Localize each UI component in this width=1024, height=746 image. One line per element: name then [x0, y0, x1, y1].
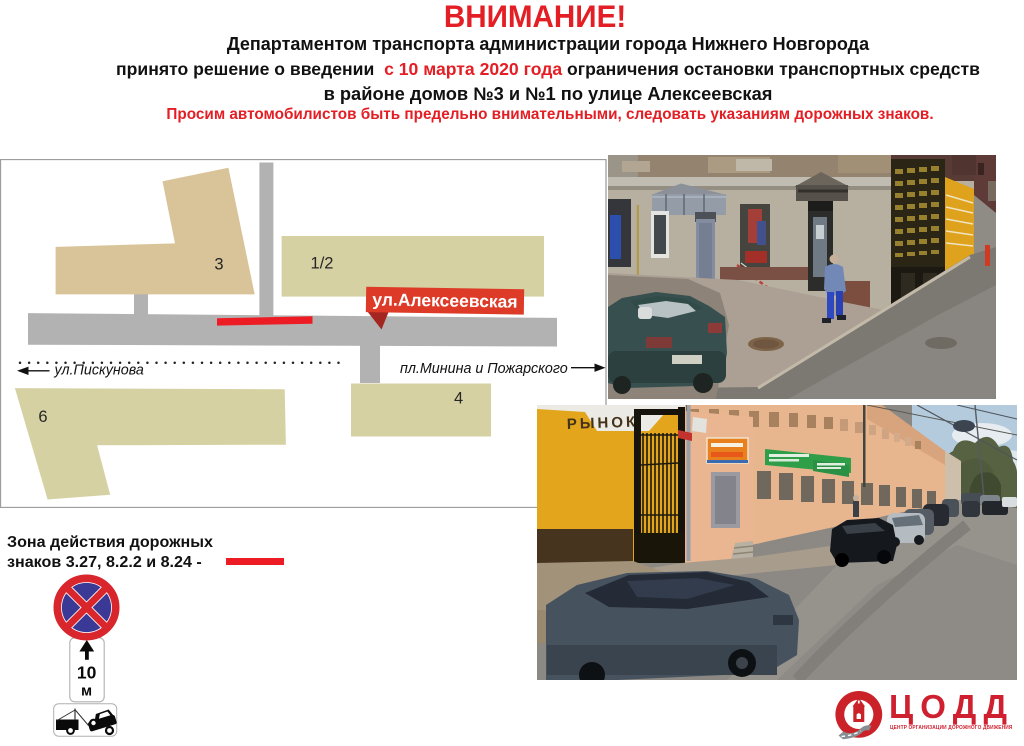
svg-text:м: м	[81, 683, 92, 700]
svg-text:пл.Минина и Пожарского: пл.Минина и Пожарского	[400, 361, 568, 377]
svg-text:4: 4	[454, 390, 463, 408]
svg-text:1/2: 1/2	[311, 255, 334, 273]
svg-text:3: 3	[214, 256, 223, 274]
svg-text:10: 10	[77, 663, 97, 683]
svg-text:ул.Пискунова: ул.Пискунова	[54, 363, 144, 379]
svg-text:РЫНОК: РЫНОК	[567, 414, 639, 433]
svg-text:ул.Алексеевская: ул.Алексеевская	[372, 289, 518, 311]
svg-text:6: 6	[38, 408, 47, 426]
